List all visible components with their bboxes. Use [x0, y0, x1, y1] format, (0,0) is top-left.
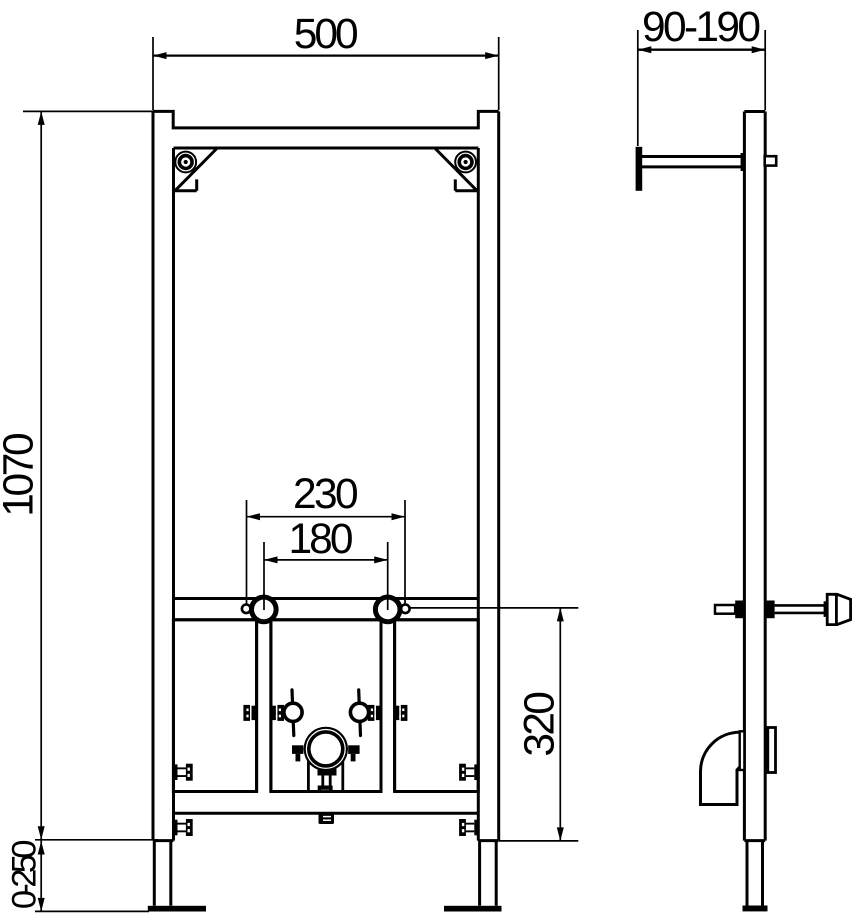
svg-text:500: 500: [294, 11, 359, 58]
svg-text:180: 180: [289, 516, 354, 563]
svg-text:320: 320: [517, 691, 564, 757]
svg-text:1070: 1070: [0, 432, 43, 516]
svg-text:0-250: 0-250: [6, 840, 44, 910]
svg-text:90-190: 90-190: [642, 4, 761, 51]
svg-text:230: 230: [293, 471, 359, 518]
